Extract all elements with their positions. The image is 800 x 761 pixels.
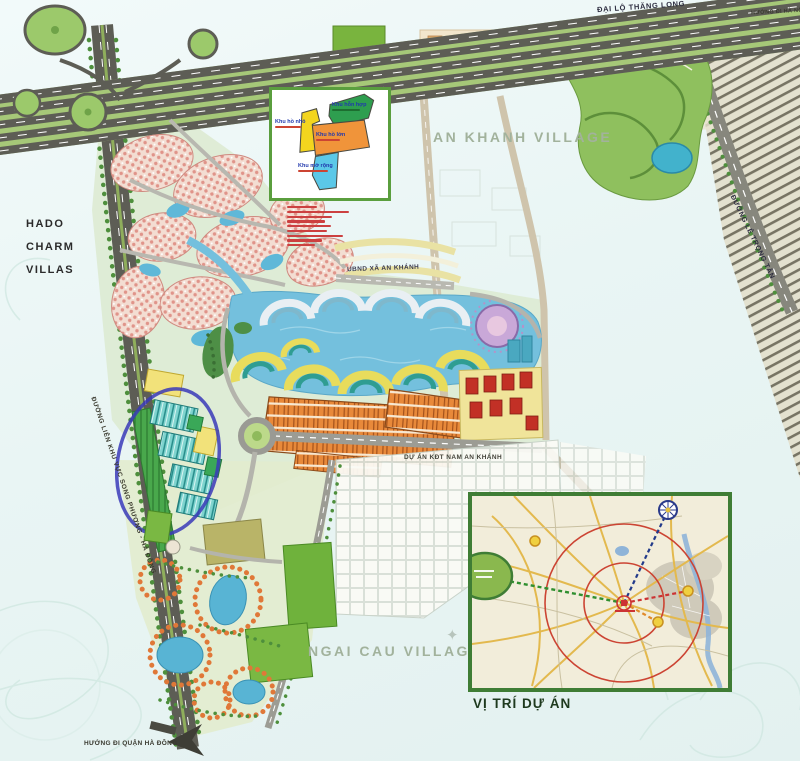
legend-note-line (287, 225, 331, 227)
legend-note-line (287, 235, 343, 237)
legend-notes (287, 206, 387, 249)
airport-icon (659, 501, 677, 519)
location-inset (468, 492, 732, 692)
legend-zone-ho-nho-label: Khu hồ nhỏ (275, 119, 306, 125)
compass-icon: ✦ (446, 626, 459, 644)
masterplan-screenshot: ĐẠI LỘ THĂNG LONG HƯỚNG ĐI HÀ NỘI ĐƯỜNG … (0, 0, 800, 761)
legend-zone-mo-rong: Khu mở rộng (298, 163, 338, 172)
tourist-area-oval (472, 553, 512, 599)
legend-zone-ho-nho-subtext (275, 126, 301, 128)
legend-note-line (287, 216, 332, 218)
legend-zone-ho-nho: Khu hồ nhỏ (275, 119, 309, 128)
legend-zone-hon-hop: Khu hỗn hợp (332, 102, 372, 111)
legend-zone-mo-rong-label: Khu mở rộng (298, 163, 333, 169)
legend-note-line (287, 206, 317, 208)
legend-zone-mo-rong-subtext (298, 170, 328, 172)
red-block-zone (457, 365, 546, 444)
legend-zone-ho-lon-subtext (316, 139, 340, 141)
legend-zone-ho-lon-label: Khu hồ lớn (316, 132, 345, 138)
legend-zone-ho-lon: Khu hồ lớn (316, 132, 352, 141)
legend-note-line (287, 230, 327, 232)
location-inset-map (472, 496, 728, 688)
legend-note-line (287, 239, 322, 241)
legend-note-line (287, 244, 315, 246)
legend-zone-hon-hop-subtext (332, 109, 360, 111)
legend-zone-hon-hop-label: Khu hỗn hợp (332, 102, 366, 108)
legend-note-line (287, 211, 349, 213)
legend-note-line (287, 220, 325, 222)
legend-inset: Khu hồ nhỏ Khu hỗn hợp Khu hồ lớn Khu mở… (269, 87, 391, 201)
